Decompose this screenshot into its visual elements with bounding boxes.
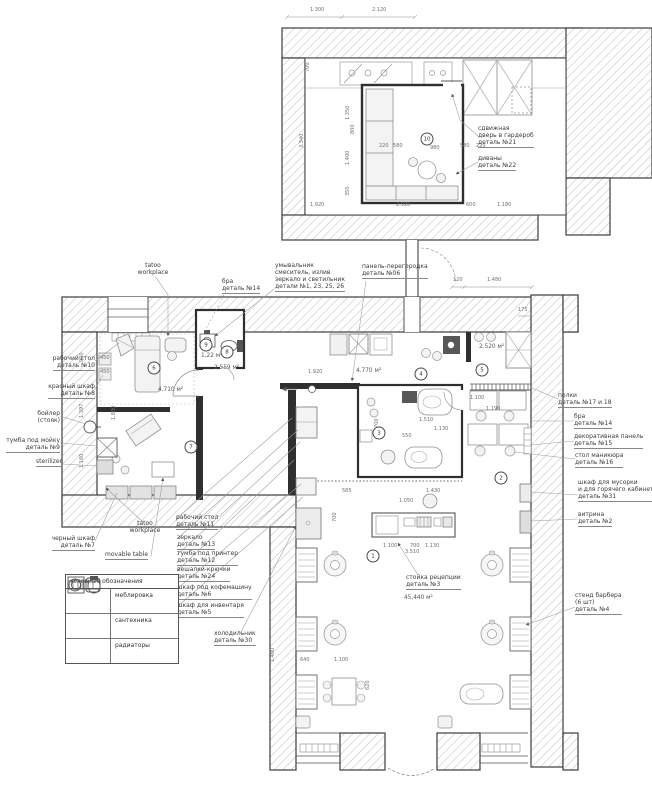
manicure-room — [475, 332, 532, 368]
plumbing-icon — [66, 614, 111, 638]
sterilizer — [97, 460, 113, 474]
boiler — [84, 421, 96, 433]
coffee-cabinet — [296, 478, 316, 495]
wall — [566, 28, 652, 178]
entry-door-swing — [388, 768, 435, 776]
wall — [282, 215, 538, 240]
floor-plan-sheet: рабочий столдеталь №10красный шкафдеталь… — [0, 0, 652, 800]
wall — [282, 58, 305, 220]
shelves-comb — [470, 384, 531, 390]
legend-row-plumbing: сантехника — [66, 614, 178, 639]
couch — [126, 414, 161, 446]
wash-chaise — [405, 447, 442, 468]
entry-pier — [340, 733, 385, 770]
entry-pier — [437, 733, 480, 770]
display-case — [520, 511, 531, 533]
toilet — [221, 341, 237, 352]
fridge — [296, 508, 321, 539]
kitchenette — [330, 334, 460, 361]
shaft-opening — [404, 297, 420, 332]
lounge-chaise — [460, 684, 503, 704]
legend-label: сантехника — [111, 614, 178, 638]
trash-cabinet — [520, 484, 531, 502]
upper-plan — [282, 15, 652, 300]
tattoo-table — [135, 336, 160, 392]
legend-label: радиаторы — [111, 639, 178, 663]
tattoo-room-1 — [99, 333, 194, 404]
movable-table — [152, 462, 174, 477]
wardrobe-x — [463, 60, 532, 115]
waiting-table — [332, 678, 356, 705]
reception-desk — [372, 494, 455, 537]
manicure-stations — [468, 391, 531, 456]
radiator-icon — [66, 639, 111, 663]
wardrobe-racks — [340, 62, 452, 85]
work-desk — [296, 407, 317, 438]
connector-shaft — [406, 240, 456, 300]
wall — [566, 178, 610, 235]
dim-line — [285, 15, 417, 19]
legend: условные обозначения меблировка сантехни… — [65, 574, 179, 664]
wall — [282, 28, 582, 58]
tattoo-room-2 — [84, 414, 176, 499]
window — [108, 297, 148, 332]
legend-row-radiators: радиаторы — [66, 639, 178, 663]
legend-label: меблировка — [111, 589, 178, 613]
partition-panel — [280, 383, 360, 389]
radiator — [524, 428, 531, 454]
floor-plan-drawing — [0, 0, 652, 800]
